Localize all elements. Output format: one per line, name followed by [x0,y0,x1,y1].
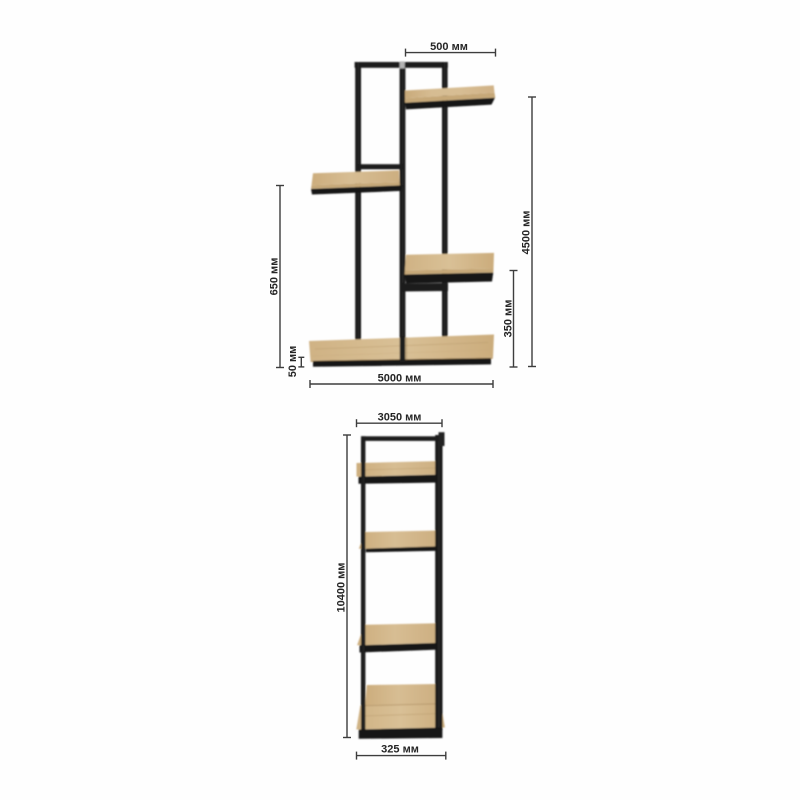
svg-text:350 мм: 350 мм [502,300,514,338]
svg-text:4500 мм: 4500 мм [521,211,533,255]
svg-text:325 мм: 325 мм [381,743,419,755]
svg-text:5000 мм: 5000 мм [378,373,422,385]
svg-text:3050 мм: 3050 мм [378,412,422,424]
svg-text:50 мм: 50 мм [287,346,299,378]
svg-text:650 мм: 650 мм [268,258,280,296]
svg-text:10400 мм: 10400 мм [336,563,348,613]
svg-text:500 мм: 500 мм [430,41,468,53]
